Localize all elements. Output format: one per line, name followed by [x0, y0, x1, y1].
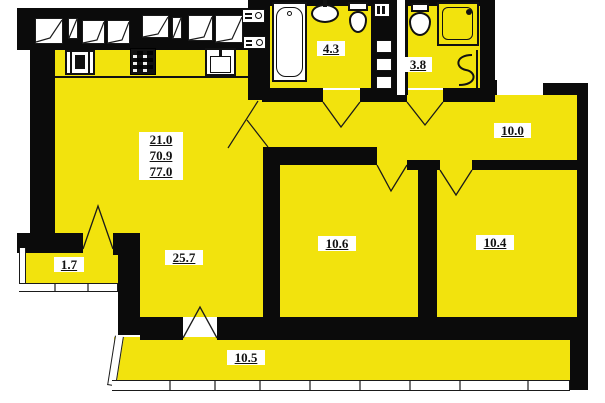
bath-door-threshold: [323, 90, 360, 102]
shaft-grid-dots: [377, 6, 387, 14]
shaft-opening: [376, 58, 392, 71]
wall-living-bedroom-divider: [263, 147, 280, 337]
window-icon: [35, 18, 63, 44]
floor-plan: 21.0 70.9 77.0 4.3 3.8 10.0 25.7 10.6 10…: [0, 0, 605, 403]
label-living-area: 25.7: [165, 250, 203, 265]
basin-tap: [323, 0, 327, 7]
shaft-opening: [376, 40, 392, 53]
toilet-door-threshold: [407, 90, 443, 102]
wall-bath-bottom-1: [262, 88, 323, 102]
wall-entrance-corner: [480, 80, 497, 95]
wall-hall-rooms-thick: [267, 147, 377, 165]
window-icon: [188, 15, 213, 41]
balcony-10-5-area: [114, 337, 570, 382]
toilet-icon: [348, 2, 368, 11]
bathtub-drain: [287, 11, 292, 16]
wall-balcony17-top: [17, 233, 83, 253]
shower-head-dot: [466, 9, 472, 15]
window-icon: [82, 20, 105, 44]
meter-bars: [246, 39, 252, 46]
stove-burner: [75, 55, 85, 69]
wall-bedrooms-divider: [418, 165, 437, 337]
shaft-right-line: [405, 0, 408, 95]
label-balcony-long-area: 10.5: [227, 350, 265, 365]
wall-bottom-1: [140, 317, 183, 340]
label-total-living-area: 70.9: [142, 148, 180, 164]
wall-bottom-2: [217, 317, 587, 340]
glazing-balcony105-bottom: [112, 380, 570, 391]
label-bedroom-right-area: 10.4: [476, 235, 514, 250]
label-kitchen-living-area: 21.0: [142, 132, 180, 148]
glazing-balcony17-left: [19, 248, 26, 288]
window-icon: [107, 20, 130, 44]
window-icon: [215, 15, 243, 43]
label-balcony-small-area: 1.7: [54, 257, 84, 272]
room-living-25-7: [140, 235, 263, 317]
shaft-opening: [376, 76, 392, 89]
wall-balcony-right: [570, 337, 588, 390]
shaft-duct-strip: [397, 0, 405, 95]
window-icon: [68, 18, 78, 39]
meter-bars: [245, 12, 252, 19]
wall-hall-bedroom-thin-2: [472, 160, 577, 170]
meter-dial: [256, 39, 263, 46]
meter-dial: [255, 12, 262, 19]
label-apartment-totals: 21.0 70.9 77.0: [139, 132, 183, 180]
bathtub-inner: [276, 7, 303, 77]
kitchen-sink-bowl: [210, 56, 231, 73]
label-toilet-area: 3.8: [404, 57, 432, 72]
stove-bar-left: [70, 52, 72, 73]
stove-bar-right: [88, 52, 90, 73]
label-bedroom-middle-area: 10.6: [318, 236, 356, 251]
toilet-icon: [411, 3, 429, 12]
glazing-balcony17-bottom: [19, 283, 118, 292]
window-icon: [142, 15, 169, 38]
label-total-area: 77.0: [142, 164, 180, 180]
wall-left: [30, 50, 55, 235]
counter-line: [55, 76, 248, 78]
wall-left-lower: [118, 250, 140, 335]
label-bathroom-area: 4.3: [317, 41, 345, 56]
cooktop-burners: [133, 51, 153, 72]
label-hallway-area: 10.0: [494, 123, 531, 138]
room-kitchen-living-east: [248, 100, 263, 235]
wall-top-right: [543, 83, 588, 95]
window-icon: [172, 17, 182, 39]
kitchen-tap: [219, 49, 222, 57]
